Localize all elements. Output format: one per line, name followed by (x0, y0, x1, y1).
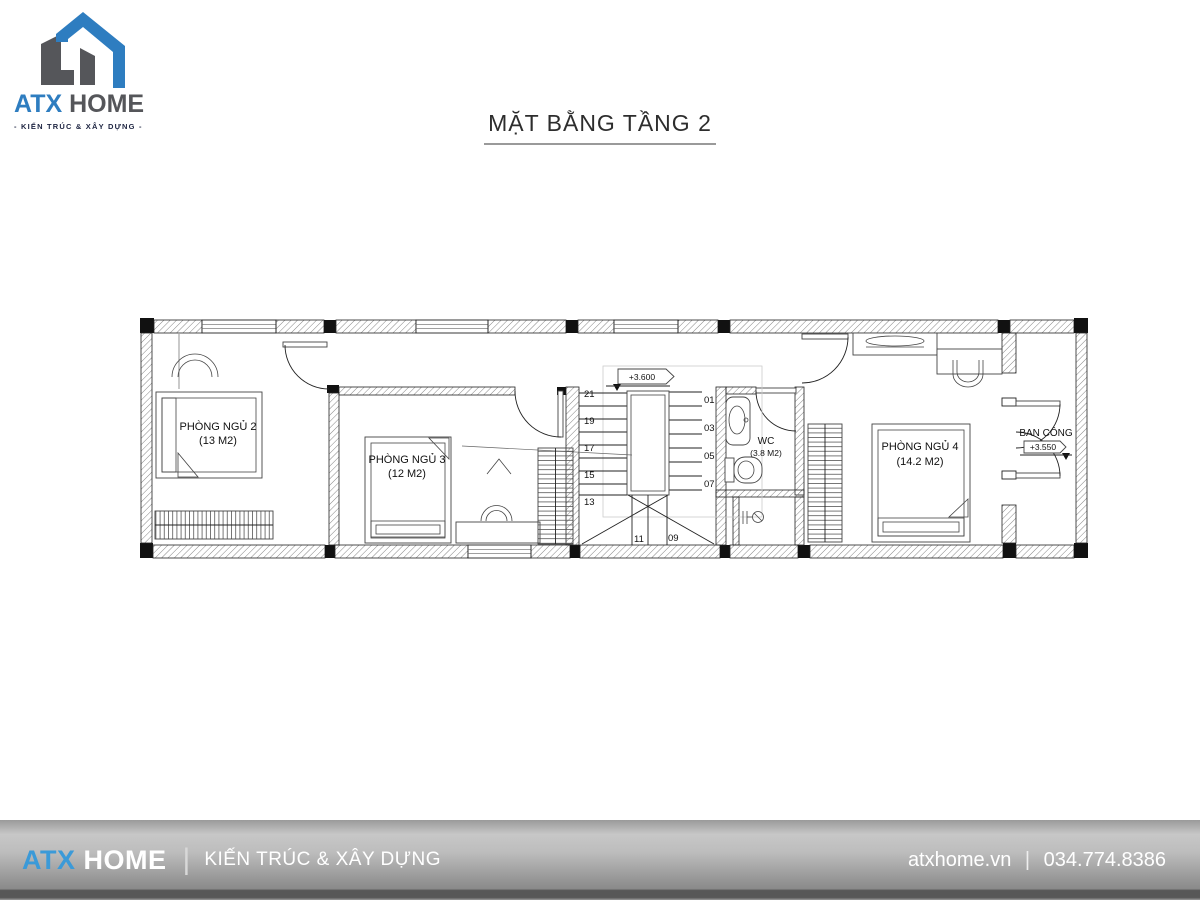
footer-tagline: KIẾN TRÚC & XÂY DỰNG (204, 849, 441, 871)
louvre-bedroom2 (155, 511, 273, 539)
stair-number: 19 (584, 416, 595, 427)
footer-phone: 034.774.8386 (1044, 849, 1166, 871)
desk-chair-bedroom3 (456, 506, 540, 544)
balcony-double-doors (1016, 401, 1060, 478)
stair-level-tag: +3.600 (606, 369, 674, 391)
room-area-bedroom2: (13 M2) (199, 435, 237, 447)
room-label-bedroom4: PHÒNG NGỦ 4 (881, 440, 958, 453)
room-area-wc: (3.8 M2) (750, 448, 782, 458)
room-label-wc: WC (758, 436, 775, 447)
stair-number: 17 (584, 443, 595, 454)
stair-number: 05 (704, 451, 715, 462)
door-bedroom4 (802, 334, 848, 383)
left-wall (141, 333, 152, 543)
stair-number: 13 (584, 497, 595, 508)
stair-winder (582, 495, 714, 545)
footer-brand-secondary: HOME (84, 845, 167, 875)
wardrobe-bedroom4 (808, 424, 842, 542)
stair-treads-right (669, 392, 702, 490)
footer-contact: atxhome.vn | 034.774.8386 (908, 849, 1166, 872)
stair-number: 01 (704, 395, 715, 406)
floor-plan-drawing: 21 19 17 15 13 01 03 05 07 11 09 +3.600 (0, 0, 1200, 900)
bed-bedroom3 (365, 437, 451, 543)
room-label-bedroom2: PHÒNG NGỦ 2 (179, 420, 256, 433)
bottom-wall (140, 543, 1088, 558)
stair-level-label: +3.600 (629, 372, 656, 382)
room-label-balcony: BAN CÔNG (1019, 426, 1073, 439)
stair-number: 11 (634, 534, 644, 545)
footer-separator: | (1025, 849, 1030, 871)
balcony-level-tag: +3.550 (1020, 441, 1072, 460)
stair-void (627, 391, 669, 495)
door-bedroom2 (283, 342, 329, 389)
wc-toilet (725, 457, 762, 483)
top-wall (140, 318, 1088, 333)
footer-bar: ATX HOME | KIẾN TRÚC & XÂY DỰNG atxhome.… (0, 820, 1200, 900)
footer-left: ATX HOME | KIẾN TRÚC & XÂY DỰNG (22, 845, 441, 876)
room-area-bedroom3: (12 M2) (388, 468, 426, 480)
wardrobe-bedroom3 (538, 448, 573, 544)
balcony-level-label: +3.550 (1030, 442, 1057, 452)
stair-number: 03 (704, 423, 715, 434)
right-wall (1076, 333, 1087, 543)
footer-divider: | (183, 845, 191, 875)
room-area-bedroom4: (14.2 M2) (896, 456, 943, 468)
footer-brand: ATX HOME (22, 845, 167, 876)
desk-bedroom4 (853, 333, 1002, 374)
footer-website: atxhome.vn (908, 849, 1011, 871)
wc-sink (726, 397, 750, 445)
valve-symbol (743, 511, 764, 524)
stair-direction-arrow (487, 459, 511, 474)
stair-number: 07 (704, 479, 715, 490)
room-label-bedroom3: PHÒNG NGỦ 3 (368, 453, 445, 466)
stair-number: 09 (668, 533, 679, 544)
stair-number: 15 (584, 470, 595, 481)
arch-symbol-bedroom2 (172, 334, 218, 389)
door-bedroom3 (515, 391, 563, 437)
footer-brand-primary: ATX (22, 845, 76, 875)
stair-number: 21 (584, 389, 595, 400)
